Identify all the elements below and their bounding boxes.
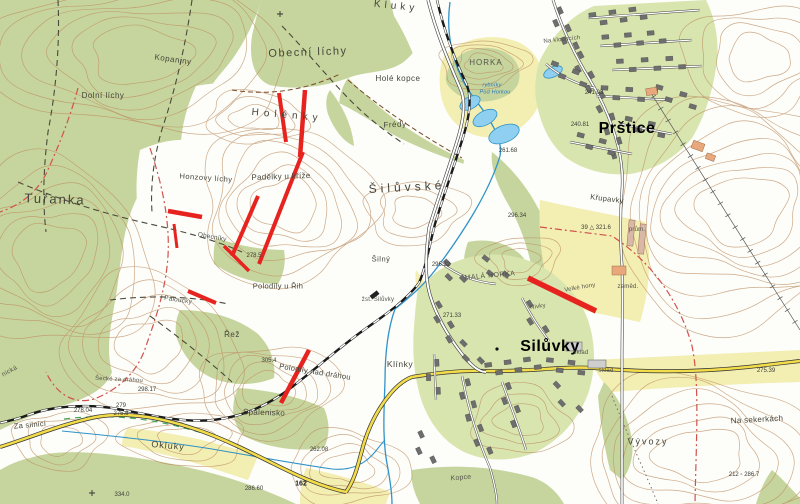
terrain-fill-layer	[0, 0, 800, 504]
map-canvas	[0, 0, 800, 504]
topographic-map: PršticeSilůvkyObecní líchyKopaninyDolní …	[0, 0, 800, 504]
